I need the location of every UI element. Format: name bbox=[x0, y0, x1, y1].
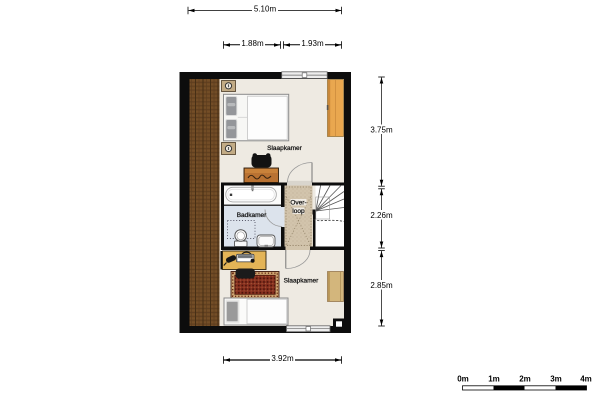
svg-text:Slaapkamer: Slaapkamer bbox=[284, 277, 320, 284]
svg-text:Badkamer: Badkamer bbox=[237, 212, 267, 219]
svg-text:4m: 4m bbox=[580, 375, 592, 384]
svg-text:Over-: Over- bbox=[290, 200, 306, 207]
svg-text:Slaapkamer: Slaapkamer bbox=[267, 145, 303, 152]
svg-text:loop: loop bbox=[292, 208, 305, 215]
svg-text:3m: 3m bbox=[550, 375, 562, 384]
svg-text:1.93m: 1.93m bbox=[301, 39, 324, 48]
svg-text:0m: 0m bbox=[457, 375, 469, 384]
svg-text:2m: 2m bbox=[519, 375, 531, 384]
svg-text:5.10m: 5.10m bbox=[254, 5, 277, 14]
svg-text:3.75m: 3.75m bbox=[370, 125, 393, 134]
svg-text:1m: 1m bbox=[488, 375, 500, 384]
svg-text:2.85m: 2.85m bbox=[370, 281, 393, 290]
svg-text:1.88m: 1.88m bbox=[241, 39, 264, 48]
svg-text:2.26m: 2.26m bbox=[370, 211, 393, 220]
svg-text:3.92m: 3.92m bbox=[271, 354, 294, 363]
